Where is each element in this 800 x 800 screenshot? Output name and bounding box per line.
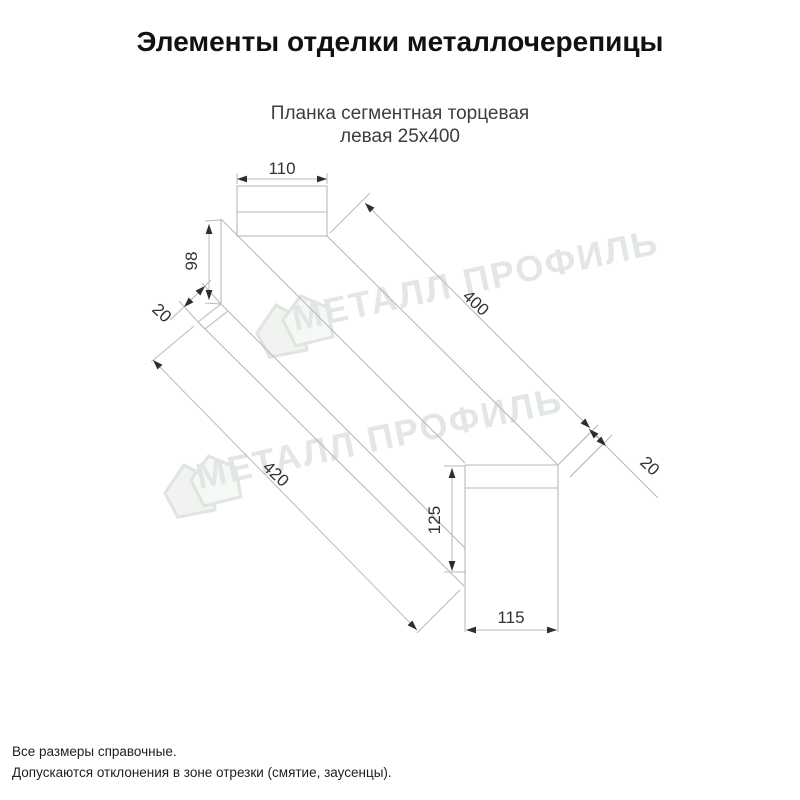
footnotes: Все размеры справочные. Допускаются откл… [12, 741, 392, 783]
dimension-labels: 110 98 20 400 20 420 125 115 [148, 159, 663, 627]
watermark-upper: МЕТАЛЛ ПРОФИЛЬ [252, 221, 663, 359]
left-end-cap [237, 186, 327, 236]
watermark-text: МЕТАЛЛ ПРОФИЛЬ [192, 379, 566, 497]
dim-left-height: 98 [182, 252, 201, 271]
technical-drawing: МЕТАЛЛ ПРОФИЛЬ МЕТАЛЛ ПРОФИЛЬ [0, 0, 800, 800]
watermark-text: МЕТАЛЛ ПРОФИЛЬ [288, 221, 662, 339]
watermark-lower: МЕТАЛЛ ПРОФИЛЬ [160, 379, 567, 519]
footnote-2: Допускаются отклонения в зоне отрезки (с… [12, 762, 392, 783]
dim-left-fold: 20 [148, 300, 175, 327]
dim-bottom-width: 115 [497, 608, 524, 627]
dim-top-width: 110 [268, 159, 295, 178]
footnote-1: Все размеры справочные. [12, 741, 392, 762]
dim-right-fold: 20 [636, 453, 663, 480]
dim-line-right-fold [589, 429, 606, 446]
dim-right-height: 125 [425, 506, 444, 534]
dim-line-left-fold [184, 286, 205, 307]
